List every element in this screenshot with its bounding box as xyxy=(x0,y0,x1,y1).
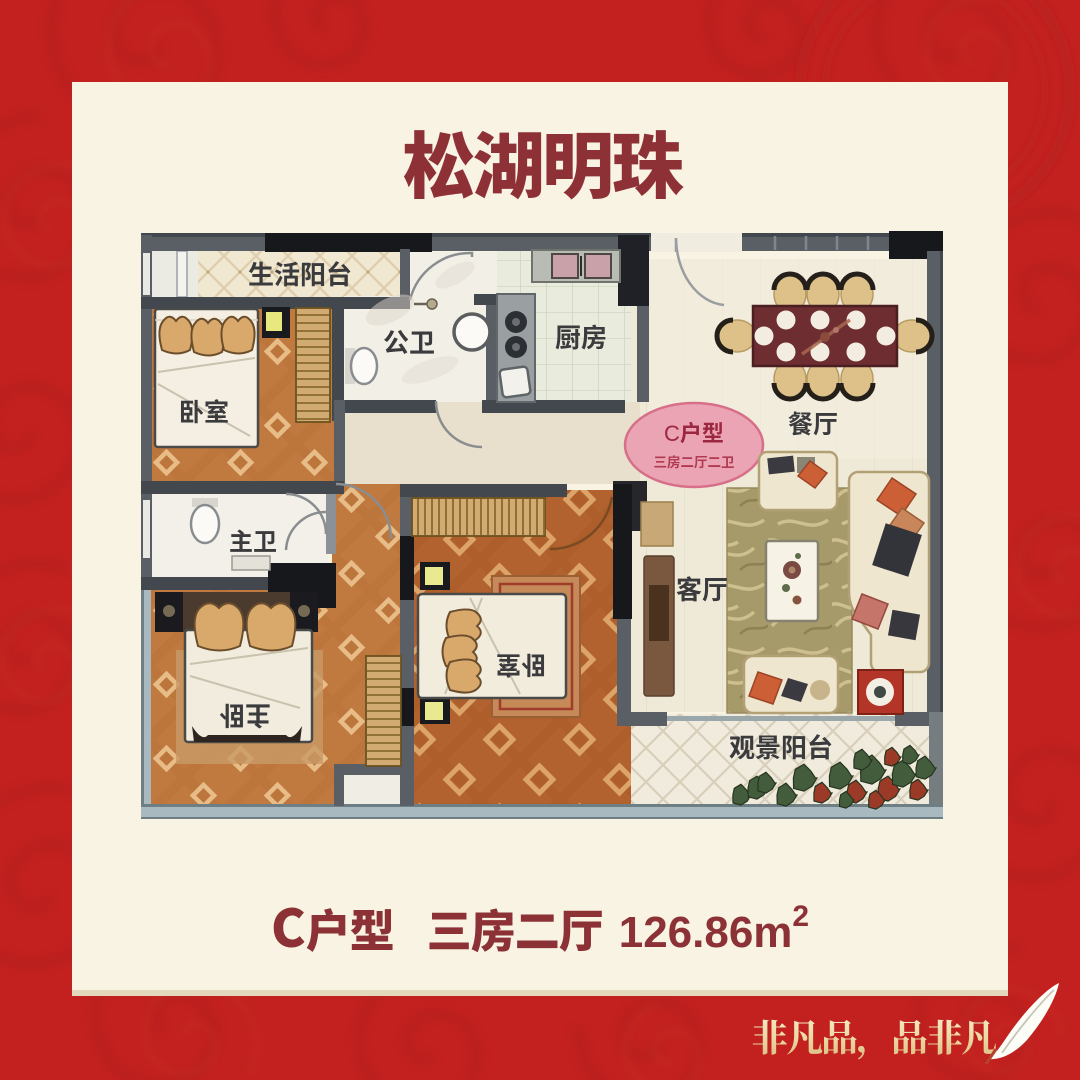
svg-text:生活阳台: 生活阳台 xyxy=(248,255,352,292)
svg-text:公卫: 公卫 xyxy=(383,323,435,360)
svg-text:非凡品，品非凡: 非凡品，品非凡 xyxy=(751,1008,998,1062)
svg-text:主卫: 主卫 xyxy=(229,522,277,557)
svg-text:松湖明珠: 松湖明珠 xyxy=(403,108,685,213)
svg-text:卧室: 卧室 xyxy=(496,648,546,684)
svg-text:客厅: 客厅 xyxy=(676,570,728,607)
svg-text:卧室: 卧室 xyxy=(179,393,229,429)
svg-text:主卧: 主卧 xyxy=(219,698,271,735)
svg-text:厨房: 厨房 xyxy=(555,318,607,355)
svg-text:C户型: C户型 xyxy=(664,416,724,448)
svg-text:观景阳台: 观景阳台 xyxy=(729,728,833,765)
svg-text:三房二厅二卫: 三房二厅二卫 xyxy=(654,451,735,471)
svg-text:餐厅: 餐厅 xyxy=(788,405,838,441)
